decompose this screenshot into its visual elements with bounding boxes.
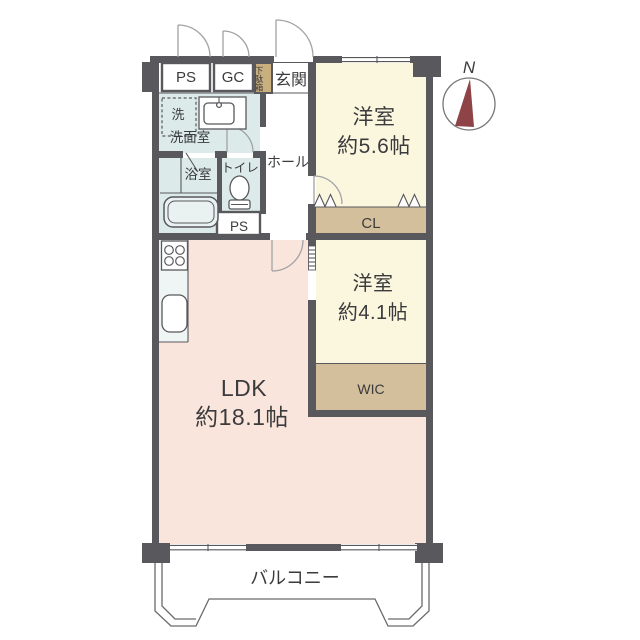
washbasin-icon — [199, 97, 246, 129]
ldk-size: 約18.1帖 — [195, 404, 289, 430]
window-top — [342, 56, 410, 63]
ldk-name: LDK — [221, 375, 267, 401]
hall-label: ホール — [267, 154, 309, 170]
floorplan-drawing: バルコニー — [0, 0, 640, 640]
washer-label: 洗 — [171, 107, 184, 122]
stove-icon — [162, 241, 188, 270]
corner-block-top-left — [142, 62, 159, 92]
gc-label: GC — [222, 69, 245, 86]
window-bottom-left — [170, 544, 246, 551]
corner-block-top-right — [413, 56, 441, 77]
bathroom-label: 浴室 — [185, 166, 212, 182]
toilet-label: トイレ — [221, 161, 259, 175]
toilet-icon — [229, 176, 250, 209]
compass-north-label: N — [463, 58, 476, 77]
floorplan-canvas: バルコニー — [0, 0, 640, 640]
ps-lower-label: PS — [230, 219, 248, 234]
western-room-2-size: 約4.1帖 — [338, 301, 408, 324]
entrance-label: 玄関 — [275, 71, 307, 89]
shoe-cabinet-label: 下駄箱 — [254, 66, 264, 92]
western-room-1-name: 洋室 — [353, 106, 396, 129]
closet-label: CL — [361, 215, 380, 232]
western-room-1-size: 約5.6帖 — [337, 135, 411, 158]
wic-label: WIC — [357, 381, 384, 397]
western-room-2-name: 洋室 — [353, 272, 394, 295]
window-bottom-right — [341, 544, 417, 551]
door-western-room-2-sliding — [309, 246, 316, 270]
balcony-label: バルコニー — [250, 568, 340, 588]
washroom-label: 洗面室 — [170, 129, 211, 145]
ps-top-label: PS — [176, 69, 196, 86]
kitchen-sink-icon — [162, 295, 187, 332]
corner-block-bottom-right — [415, 543, 443, 563]
ldk-floor-right — [308, 417, 426, 544]
